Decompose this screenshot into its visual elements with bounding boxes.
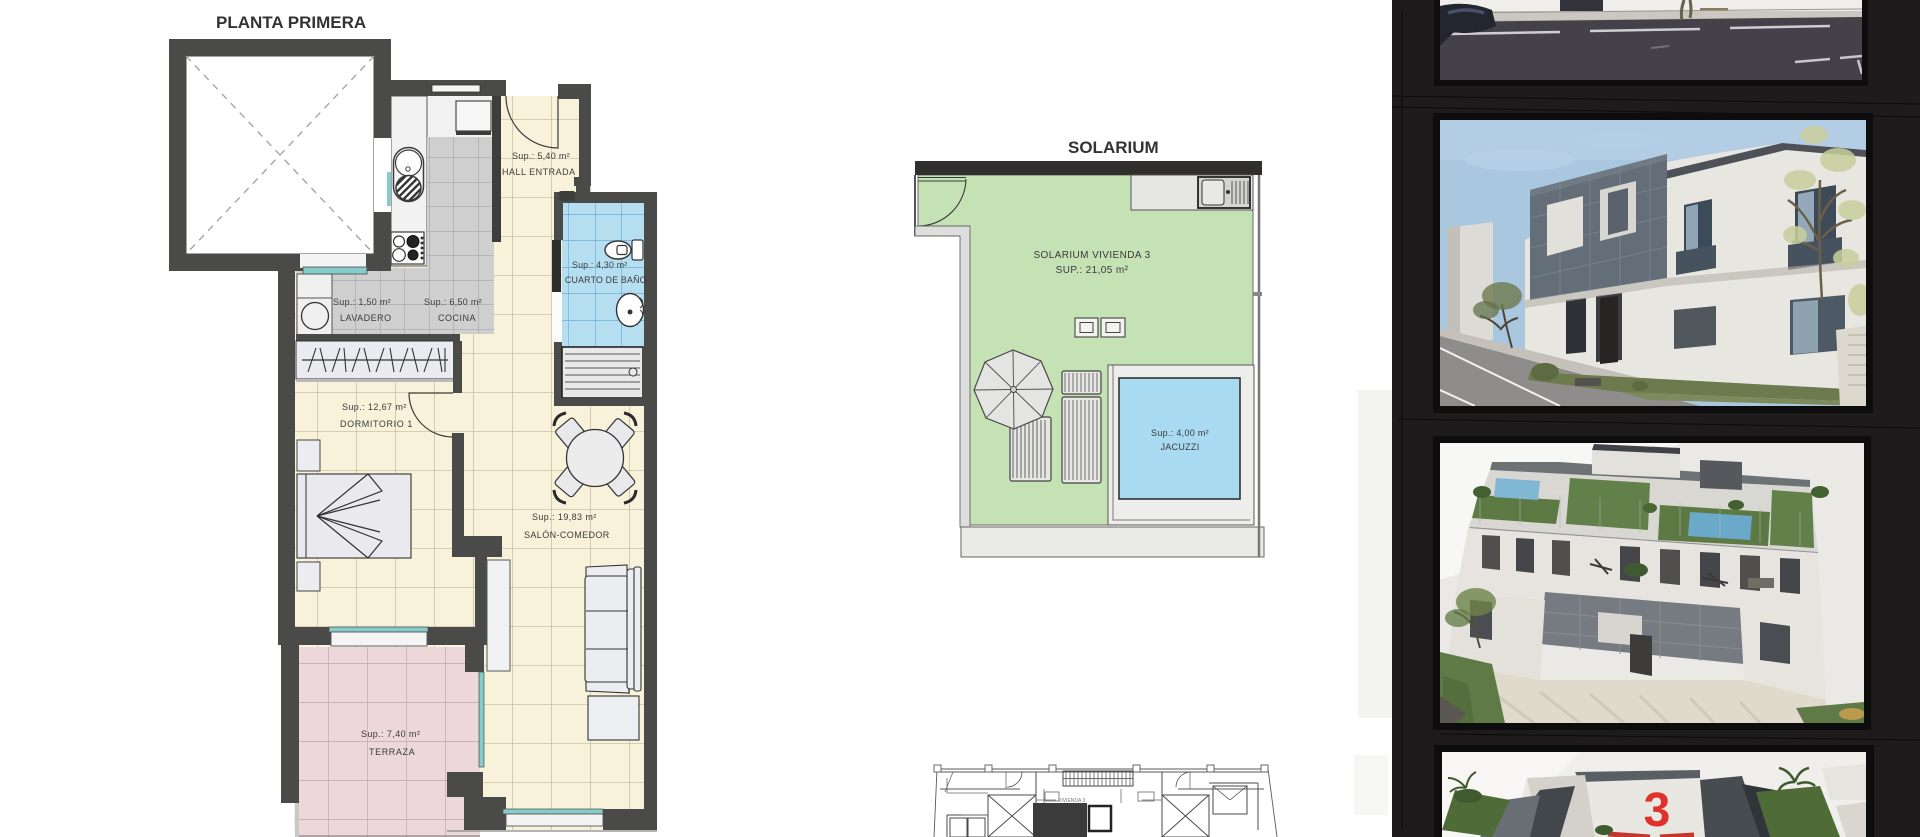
svg-text:Sup.: 19,83 m²: Sup.: 19,83 m²	[532, 512, 597, 522]
svg-text:Sup.: 7,40 m²: Sup.: 7,40 m²	[361, 729, 420, 739]
svg-text:JACUZZI: JACUZZI	[1160, 442, 1199, 452]
svg-text:TERRAZA: TERRAZA	[369, 747, 415, 757]
svg-text:SUP.: 21,05 m²: SUP.: 21,05 m²	[1056, 265, 1129, 276]
svg-text:COCINA: COCINA	[438, 313, 476, 323]
svg-text:Sup.: 6,50 m²: Sup.: 6,50 m²	[424, 297, 482, 307]
svg-text:3: 3	[1644, 784, 1671, 837]
svg-text:PLANTA PRIMERA: PLANTA PRIMERA	[216, 13, 366, 32]
svg-text:CUARTO DE BAÑO: CUARTO DE BAÑO	[565, 275, 647, 285]
svg-text:Sup.: 1,50 m²: Sup.: 1,50 m²	[333, 297, 391, 307]
svg-text:Sup.: 4,30 m²: Sup.: 4,30 m²	[572, 260, 627, 270]
svg-text:Sup.: 4,00 m²: Sup.: 4,00 m²	[1151, 428, 1209, 438]
svg-text:HALL ENTRADA: HALL ENTRADA	[502, 167, 576, 177]
svg-text:SOLARIUM VIVIENDA 3: SOLARIUM VIVIENDA 3	[1033, 250, 1150, 261]
svg-text:SOLARIUM: SOLARIUM	[1068, 138, 1159, 157]
svg-text:Sup.: 12,67 m²: Sup.: 12,67 m²	[342, 402, 407, 412]
svg-text:DORMITORIO 1: DORMITORIO 1	[340, 419, 413, 429]
svg-text:Sup.: 5,40 m²: Sup.: 5,40 m²	[512, 151, 570, 161]
svg-text:SALÓN-COMEDOR: SALÓN-COMEDOR	[524, 530, 610, 540]
svg-text:LAVADERO: LAVADERO	[340, 313, 392, 323]
